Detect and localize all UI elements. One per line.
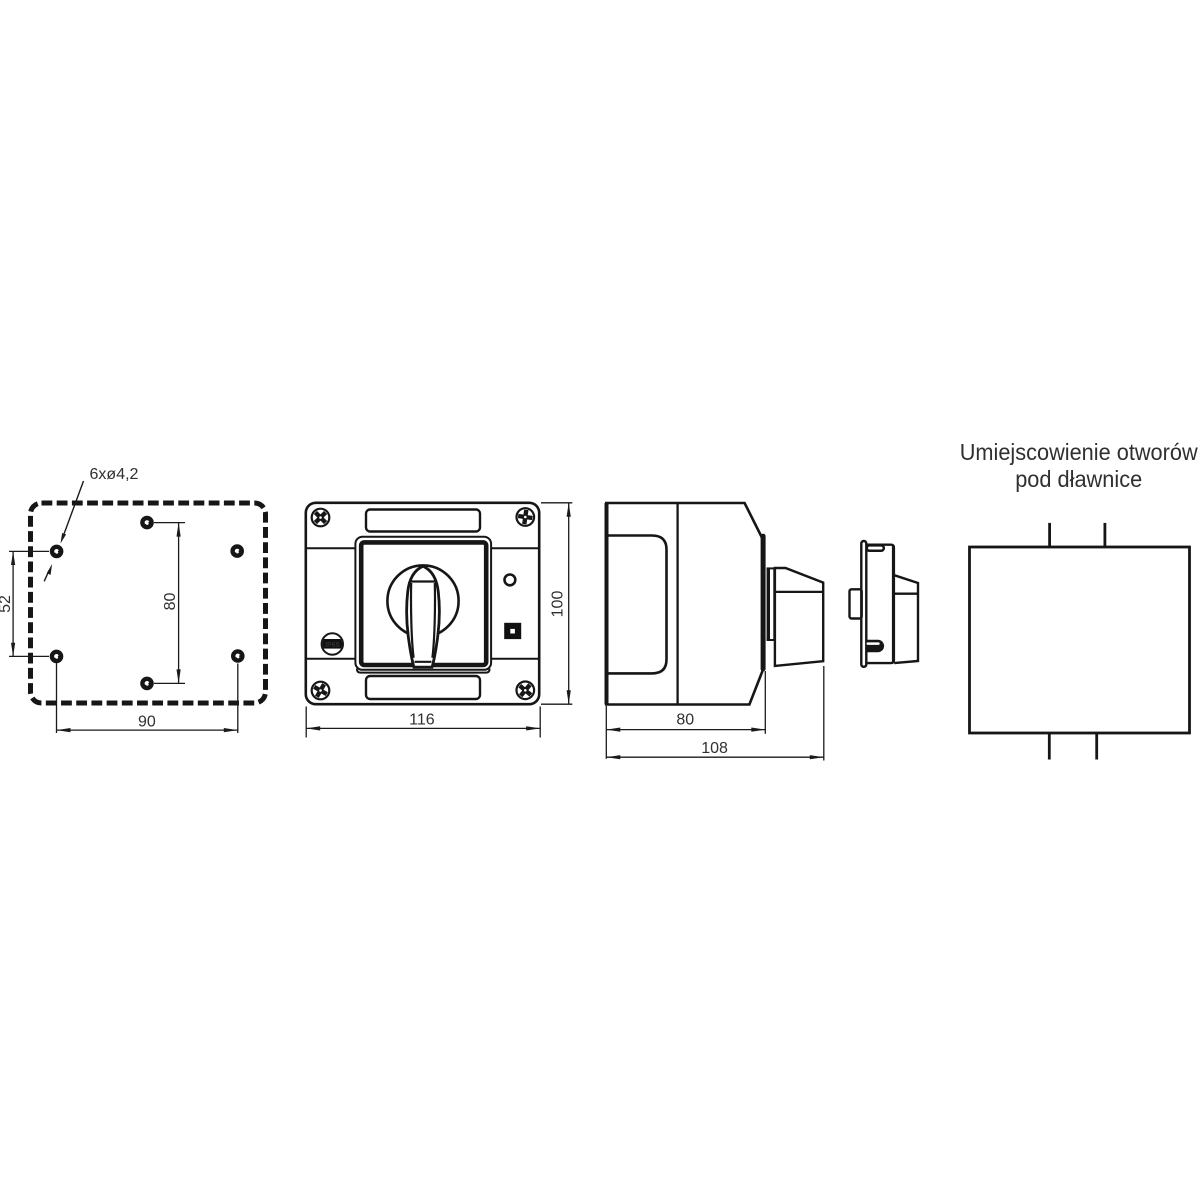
svg-text:Umiejscowienie otworów: Umiejscowienie otworów [960,439,1199,465]
svg-text:100: 100 [549,591,566,618]
svg-text:116: 116 [409,711,435,728]
svg-text:52: 52 [0,595,14,613]
svg-text:IP65: IP65 [325,642,340,649]
svg-text:108: 108 [701,740,728,757]
svg-text:90: 90 [138,713,156,730]
svg-text:6xø4,2: 6xø4,2 [90,466,139,483]
svg-text:80: 80 [162,593,179,611]
svg-text:80: 80 [676,712,694,729]
svg-text:pod dławnice: pod dławnice [1015,466,1142,492]
